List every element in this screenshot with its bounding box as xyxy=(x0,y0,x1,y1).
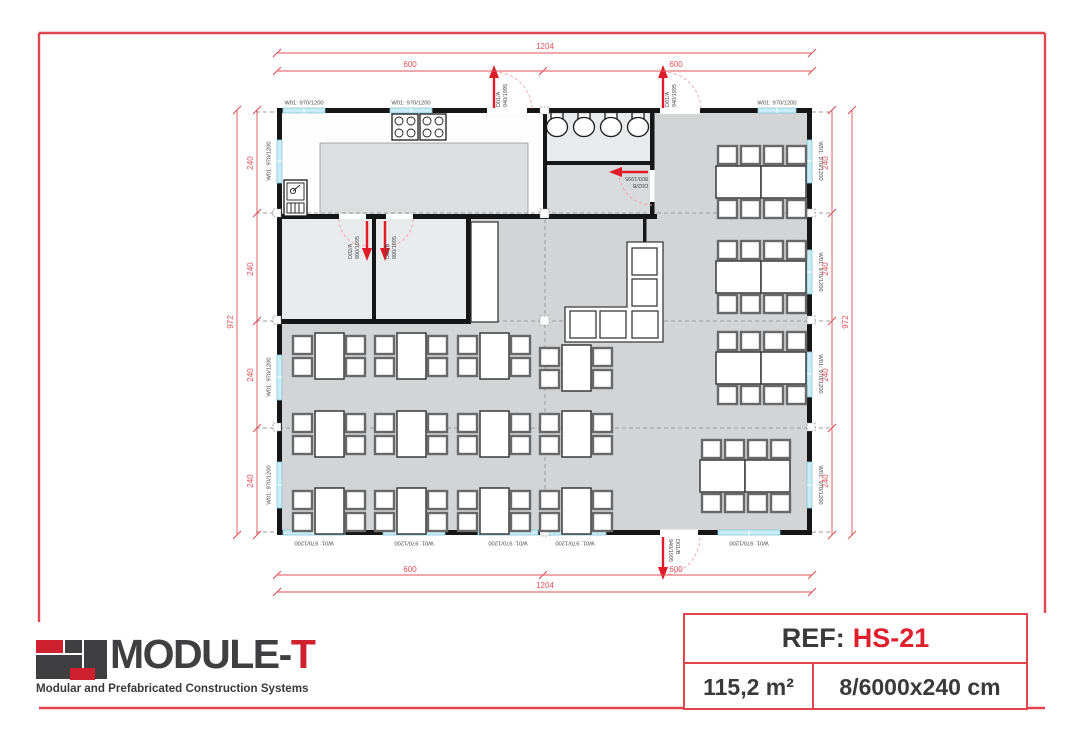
module-spec: 8/6000x240 cm xyxy=(814,664,1026,710)
wall-counter-stub xyxy=(643,219,647,244)
window-label: W01: 970/1200 xyxy=(488,540,527,546)
wall-rooms-right xyxy=(466,216,471,323)
window-label: W01: 970/1200 xyxy=(267,141,273,180)
dim-module-height: 240 xyxy=(821,474,830,488)
window xyxy=(807,140,812,183)
window-label: W01: 970/1200 xyxy=(294,540,333,546)
ref-value: HS-21 xyxy=(853,623,930,654)
door-label: 800/1995 xyxy=(625,175,648,181)
door-label: 940/1995 xyxy=(503,84,509,107)
entrance-arrow xyxy=(658,537,668,580)
wall-washroom-right xyxy=(650,108,655,219)
dim-total-width: 1204 xyxy=(536,42,554,51)
dim-half-width: 600 xyxy=(403,60,417,69)
brand-logo: MODULE-T Modular and Prefabricated Const… xyxy=(36,636,336,700)
sink-icon xyxy=(284,180,307,216)
window xyxy=(807,352,812,397)
wall-washroom-divider xyxy=(546,161,651,165)
door-label: D01/A xyxy=(665,91,671,107)
window-label: W01: 970/1200 xyxy=(729,540,768,546)
door-label: 940/1995 xyxy=(667,539,673,562)
dim-module-height: 240 xyxy=(246,368,255,382)
window xyxy=(277,462,282,508)
table-8seat xyxy=(716,332,806,404)
window xyxy=(283,108,325,113)
window-label: W01: 970/1200 xyxy=(757,101,796,107)
brand-tagline: Modular and Prefabricated Construction S… xyxy=(36,682,336,695)
window-label: W01: 970/1200 xyxy=(394,540,433,546)
window xyxy=(390,108,432,113)
window xyxy=(277,140,282,183)
door-label: D01/B xyxy=(674,539,680,555)
door-label: D02/A xyxy=(348,243,354,259)
dim-half-width: 600 xyxy=(669,60,683,69)
window xyxy=(277,355,282,400)
table-8seat xyxy=(700,440,790,512)
dim-total-height: 972 xyxy=(841,315,850,329)
door-label: D02/B xyxy=(385,243,391,259)
reference-title: REF: HS-21 xyxy=(685,615,1026,664)
table-8seat xyxy=(716,146,806,218)
window-label: W01: 970/1200 xyxy=(267,465,273,504)
dim-half-width: 600 xyxy=(403,565,417,574)
reference-box: REF: HS-21 115,2 m² 8/6000x240 cm xyxy=(683,613,1028,710)
dim-total-height: 972 xyxy=(226,315,235,329)
door-label: 800/1995 xyxy=(355,236,361,259)
window xyxy=(758,108,796,113)
brand-logo-icon xyxy=(36,640,112,686)
window-label: W01: 970/1200 xyxy=(555,540,594,546)
dim-module-height: 240 xyxy=(821,368,830,382)
wall-room-divider xyxy=(372,216,376,323)
dim-total-width: 1204 xyxy=(536,581,554,590)
window xyxy=(807,462,812,508)
table-8seat xyxy=(716,241,806,313)
door-label: D01/A xyxy=(496,91,502,107)
dim-module-height: 240 xyxy=(246,262,255,276)
window-label: W01: 970/1200 xyxy=(284,101,323,107)
window xyxy=(718,530,780,535)
dim-module-height: 240 xyxy=(246,474,255,488)
datasheet-page: D01/A 940/1995 D01/A 940/1995 D01/B 940/… xyxy=(0,0,1080,743)
dim-module-height: 240 xyxy=(821,262,830,276)
door-label: 940/1995 xyxy=(672,84,678,107)
dim-module-height: 240 xyxy=(246,156,255,170)
window-label: W01: 970/1200 xyxy=(391,101,430,107)
dim-half-width: 600 xyxy=(669,565,683,574)
area-value: 115,2 m² xyxy=(685,664,814,710)
cabinet xyxy=(471,222,498,322)
brand-name: MODULE-T xyxy=(110,631,355,679)
ref-label: REF: xyxy=(782,623,845,654)
window xyxy=(807,250,812,294)
wall-rooms-bottom xyxy=(277,319,471,324)
window-label: W01: 970/1200 xyxy=(267,357,273,396)
dim-module-height: 240 xyxy=(821,156,830,170)
door-label: 800/1995 xyxy=(392,236,398,259)
door-label: D02/B xyxy=(632,182,648,188)
